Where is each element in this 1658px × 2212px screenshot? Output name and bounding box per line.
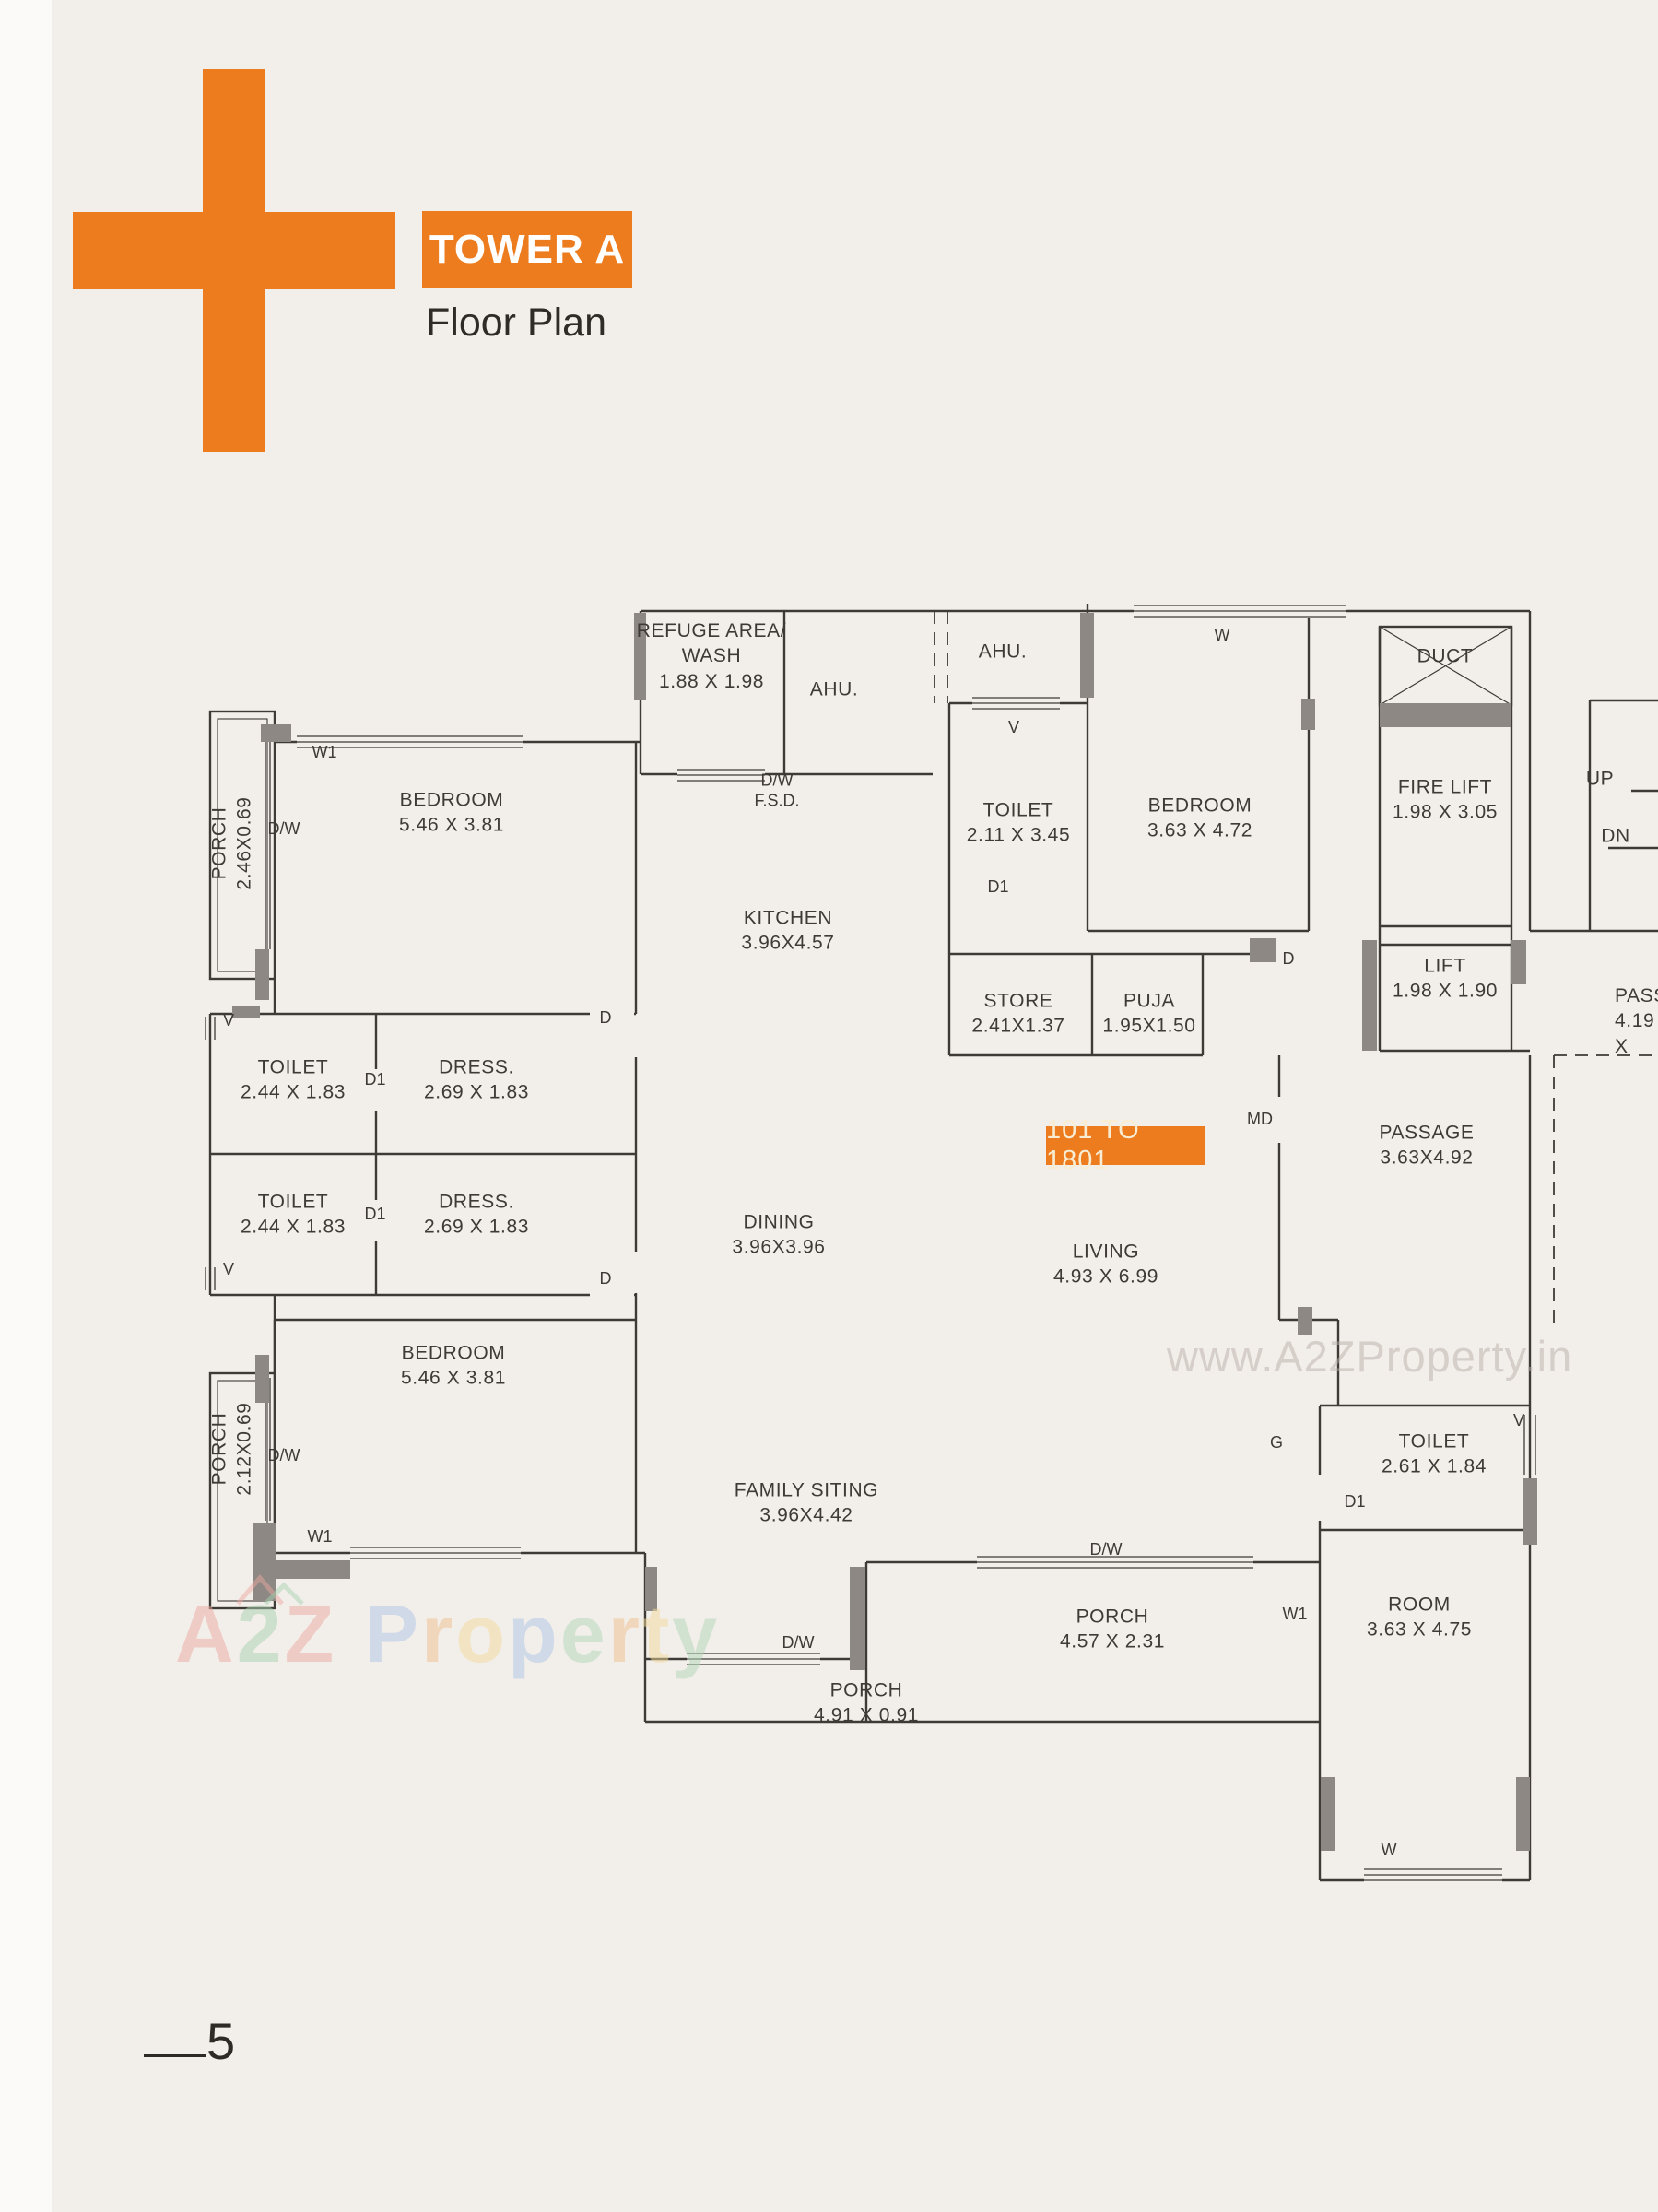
room-label-porch-top-left: PORCH 2.46X0.69 <box>207 796 258 889</box>
room-label-dress-lower: DRESS. 2.69 X 1.83 <box>424 1190 529 1241</box>
stair-label-up: UP <box>1586 766 1614 791</box>
door-marker-d-passage: D <box>1283 949 1295 970</box>
room-label-ahu-left: AHU. <box>810 677 859 701</box>
room-label-toilet-right: TOILET 2.61 X 1.84 <box>1382 1430 1487 1480</box>
room-label-porch-bottom-left: PORCH 2.12X0.69 <box>207 1402 258 1495</box>
room-label-lift: LIFT 1.98 X 1.90 <box>1393 954 1498 1005</box>
door-marker-d1-dress-upper: D1 <box>364 1070 385 1090</box>
door-marker-d-toilet-upper: D <box>600 1008 612 1029</box>
window-marker-dw-family: D/W <box>782 1633 815 1653</box>
window-marker-w-top: W <box>1215 626 1230 646</box>
room-label-porch-491: PORCH 4.91 X 0.91 <box>814 1678 919 1729</box>
vent-marker-v-toilet-right: V <box>1513 1411 1524 1431</box>
room-label-fire-lift: FIRE LIFT 1.98 X 3.05 <box>1393 775 1498 826</box>
watermark-letter: P <box>364 1588 421 1679</box>
room-label-refuge-wash: REFUGE AREA/ WASH 1.88 X 1.98 <box>637 618 786 694</box>
room-label-passage-right-cut: PASS 4.19 X <box>1615 983 1658 1059</box>
vent-marker-v-ahu: V <box>1008 718 1019 738</box>
room-label-dining: DINING 3.96X3.96 <box>732 1210 825 1261</box>
watermark-letter: 2 <box>237 1588 285 1679</box>
room-label-toilet-top: TOILET 2.11 X 3.45 <box>967 798 1070 849</box>
door-marker-md: MD <box>1247 1110 1273 1130</box>
room-label-porch-457: PORCH 4.57 X 2.31 <box>1060 1605 1165 1655</box>
watermark-url: www.A2ZProperty.in <box>1167 1331 1572 1382</box>
stair-label-dn: DN <box>1601 823 1630 848</box>
room-label-kitchen: KITCHEN 3.96X4.57 <box>741 906 834 957</box>
floor-plan-page: TOWER A Floor Plan <box>0 0 1658 2212</box>
room-label-dress-upper: DRESS. 2.69 X 1.83 <box>424 1055 529 1106</box>
room-label-puja: PUJA 1.95X1.50 <box>1102 989 1195 1040</box>
unit-range-badge: 101 TO 1801 <box>1046 1126 1205 1165</box>
room-label-bedroom-top-left: BEDROOM 5.46 X 3.81 <box>399 788 504 839</box>
room-label-store: STORE 2.41X1.37 <box>971 989 1064 1040</box>
watermark-letter: Z <box>285 1588 337 1679</box>
door-marker-d1-bedroom-top: D1 <box>987 877 1008 898</box>
room-label-family-siting: FAMILY SITING 3.96X4.42 <box>735 1478 878 1529</box>
watermark-letter: p <box>508 1588 560 1679</box>
window-marker-dw-porch-top: D/W <box>268 819 300 840</box>
window-marker-dw-porch-bottom: D/W <box>268 1446 300 1466</box>
room-label-toilet-mid-upper: TOILET 2.44 X 1.83 <box>241 1055 346 1106</box>
watermark-letter: r <box>608 1588 642 1679</box>
window-marker-w1-room: W1 <box>1283 1605 1308 1625</box>
page-number-rule <box>144 2054 206 2057</box>
watermark-letter: e <box>560 1588 608 1679</box>
room-label-living: LIVING 4.93 X 6.99 <box>1053 1240 1158 1290</box>
floor-plan-drawing <box>0 0 1658 2212</box>
room-label-ahu-right: AHU. <box>979 639 1028 664</box>
door-marker-d1-dress-lower: D1 <box>364 1205 385 1225</box>
window-marker-w1-top: W1 <box>312 743 337 763</box>
watermark-brand: A2ZProperty <box>175 1587 720 1681</box>
room-label-toilet-mid-lower: TOILET 2.44 X 1.83 <box>241 1190 346 1241</box>
window-marker-dw-fsd: D/W F.S.D. <box>754 771 799 810</box>
page-number: 5 <box>206 2011 235 2071</box>
vent-marker-v-toilet-lower: V <box>223 1260 234 1280</box>
watermark-letter: y <box>672 1588 720 1679</box>
watermark-letter: A <box>175 1588 237 1679</box>
room-label-passage: PASSAGE 3.63X4.92 <box>1379 1121 1474 1171</box>
door-marker-d1-toilet-right: D1 <box>1344 1492 1365 1512</box>
room-label-duct: DUCT <box>1417 643 1474 668</box>
door-marker-d-toilet-lower: D <box>600 1269 612 1289</box>
watermark-letter: t <box>642 1588 672 1679</box>
vent-marker-v-toilet-upper: V <box>223 1011 234 1031</box>
gas-marker-g: G <box>1270 1433 1283 1453</box>
room-label-room-bottom-right: ROOM 3.63 X 4.75 <box>1367 1593 1472 1643</box>
room-label-bedroom-bottom-left: BEDROOM 5.46 X 3.81 <box>401 1341 506 1392</box>
window-marker-w1-bedroom-bottom: W1 <box>308 1527 333 1547</box>
window-marker-dw-porch457: D/W <box>1090 1540 1123 1560</box>
watermark-letter: o <box>455 1588 508 1679</box>
watermark-letter: r <box>421 1588 455 1679</box>
room-label-bedroom-top-right: BEDROOM 3.63 X 4.72 <box>1147 794 1252 844</box>
window-marker-w-room-bottom: W <box>1382 1841 1397 1861</box>
